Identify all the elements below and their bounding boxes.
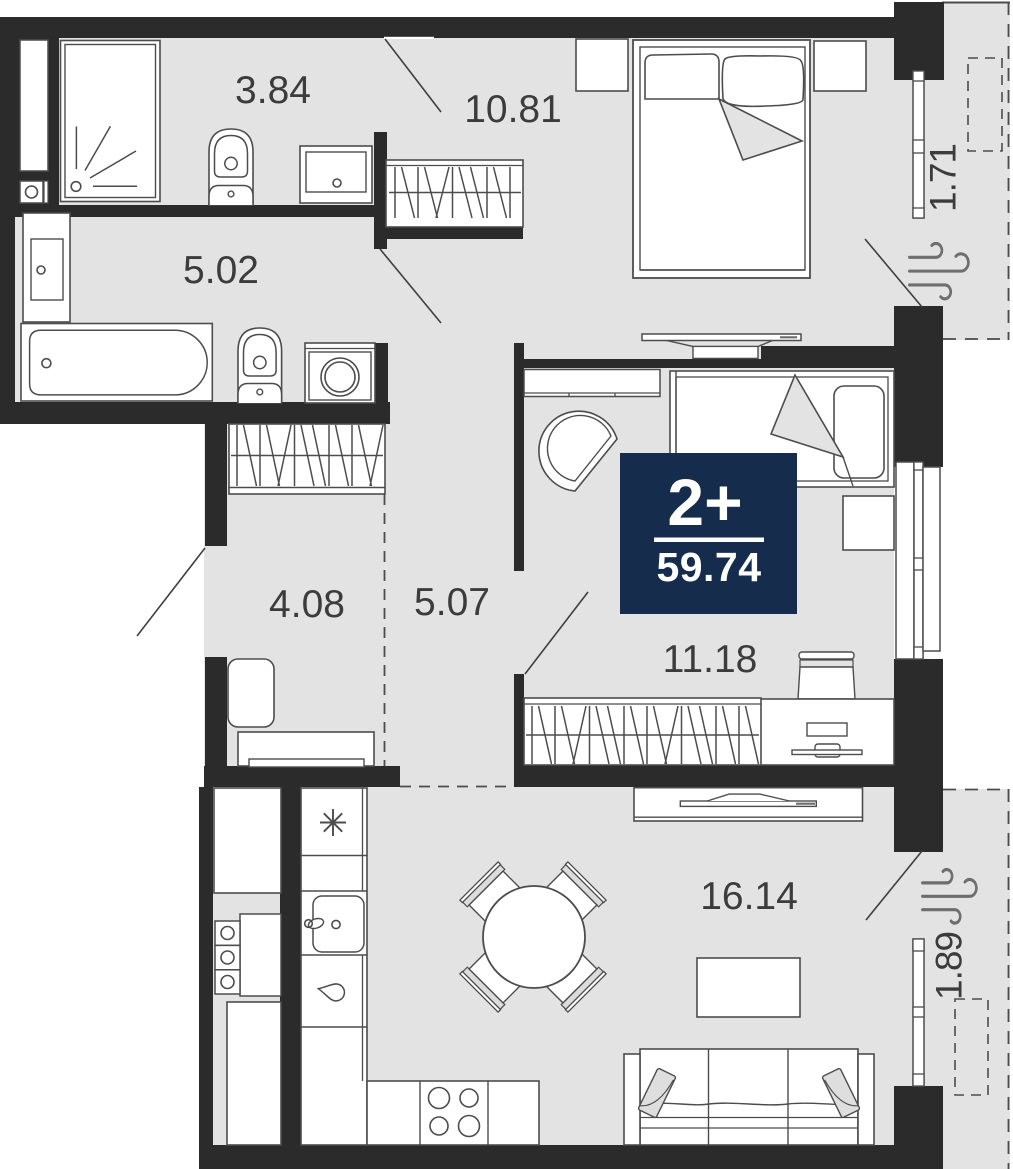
svg-text:59.74: 59.74: [656, 544, 761, 590]
svg-text:1.71: 1.71: [923, 144, 964, 212]
svg-text:3.84: 3.84: [235, 69, 311, 112]
svg-text:10.81: 10.81: [464, 88, 562, 131]
svg-text:1.89: 1.89: [929, 932, 970, 1000]
svg-text:11.18: 11.18: [663, 638, 758, 681]
svg-text:5.02: 5.02: [183, 249, 259, 292]
svg-text:4.08: 4.08: [269, 583, 345, 626]
svg-text:2+: 2+: [667, 465, 742, 539]
svg-text:5.07: 5.07: [414, 581, 490, 624]
svg-text:16.14: 16.14: [700, 875, 798, 918]
